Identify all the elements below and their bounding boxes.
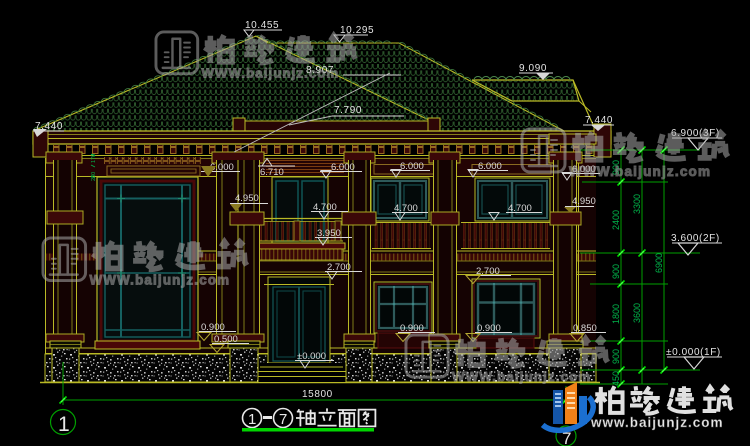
svg-text:10.455: 10.455: [245, 20, 279, 31]
svg-text:6900: 6900: [654, 253, 664, 273]
svg-text:1: 1: [58, 413, 70, 436]
svg-text:3600: 3600: [632, 303, 642, 323]
svg-text:7: 7: [279, 411, 287, 428]
svg-text:4.950: 4.950: [235, 193, 259, 204]
svg-text:10.295: 10.295: [340, 25, 374, 36]
svg-text:1800: 1800: [611, 304, 621, 324]
svg-text:4.950: 4.950: [572, 196, 596, 207]
svg-text:3300: 3300: [632, 194, 642, 214]
svg-text:9.090: 9.090: [519, 63, 547, 74]
svg-text:±0.000(1F): ±0.000(1F): [666, 347, 721, 358]
svg-text:7.790: 7.790: [334, 105, 362, 116]
svg-text:6.710: 6.710: [260, 167, 284, 178]
svg-text:3.600(2F): 3.600(2F): [671, 233, 720, 244]
svg-text:900: 900: [611, 264, 621, 279]
svg-text:7.440: 7.440: [585, 115, 613, 126]
svg-text:www.baijunjz.com: www.baijunjz.com: [590, 415, 724, 430]
svg-text:900: 900: [611, 349, 621, 364]
svg-text:2400: 2400: [611, 210, 621, 230]
svg-text:1: 1: [248, 411, 256, 428]
svg-text:450: 450: [611, 371, 621, 386]
svg-text:15800: 15800: [302, 389, 333, 400]
